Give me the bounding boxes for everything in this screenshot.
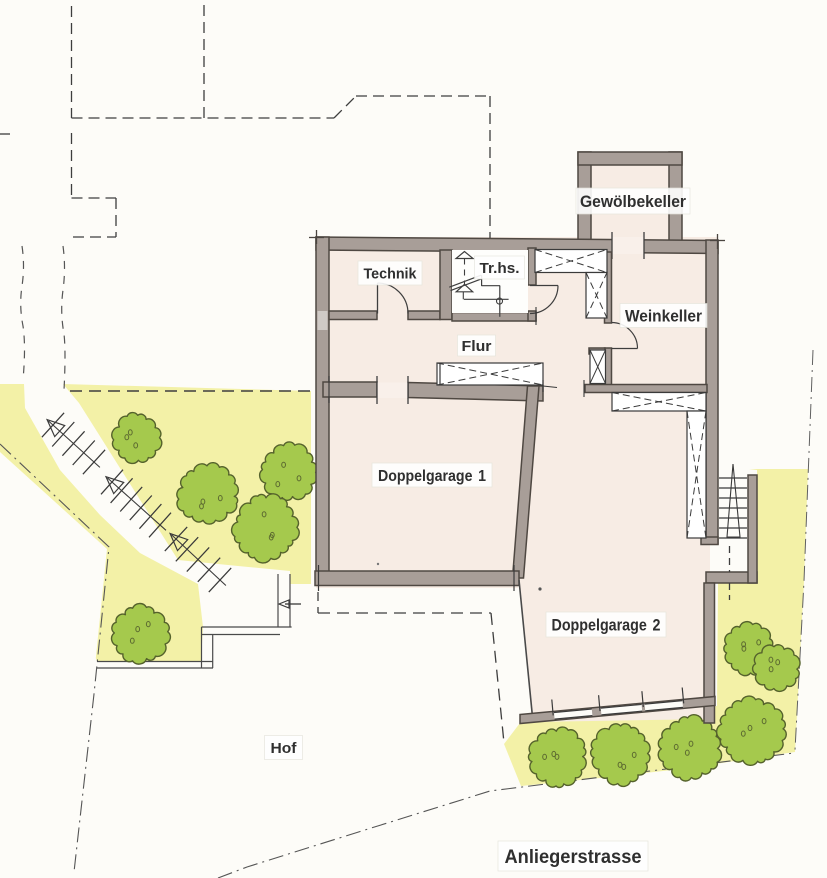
svg-text:Anliegerstrasse: Anliegerstrasse <box>505 847 642 868</box>
svg-text:Weinkeller: Weinkeller <box>625 307 702 326</box>
svg-text:Gewölbekeller: Gewölbekeller <box>580 192 686 211</box>
svg-text:Tr.hs.: Tr.hs. <box>480 260 520 277</box>
svg-text:Hof: Hof <box>271 740 298 757</box>
svg-text:Flur: Flur <box>462 338 492 355</box>
svg-text:Technik: Technik <box>364 265 418 282</box>
svg-text:Doppelgarage 1: Doppelgarage 1 <box>378 468 486 485</box>
svg-text:Doppelgarage 2: Doppelgarage 2 <box>552 616 661 635</box>
